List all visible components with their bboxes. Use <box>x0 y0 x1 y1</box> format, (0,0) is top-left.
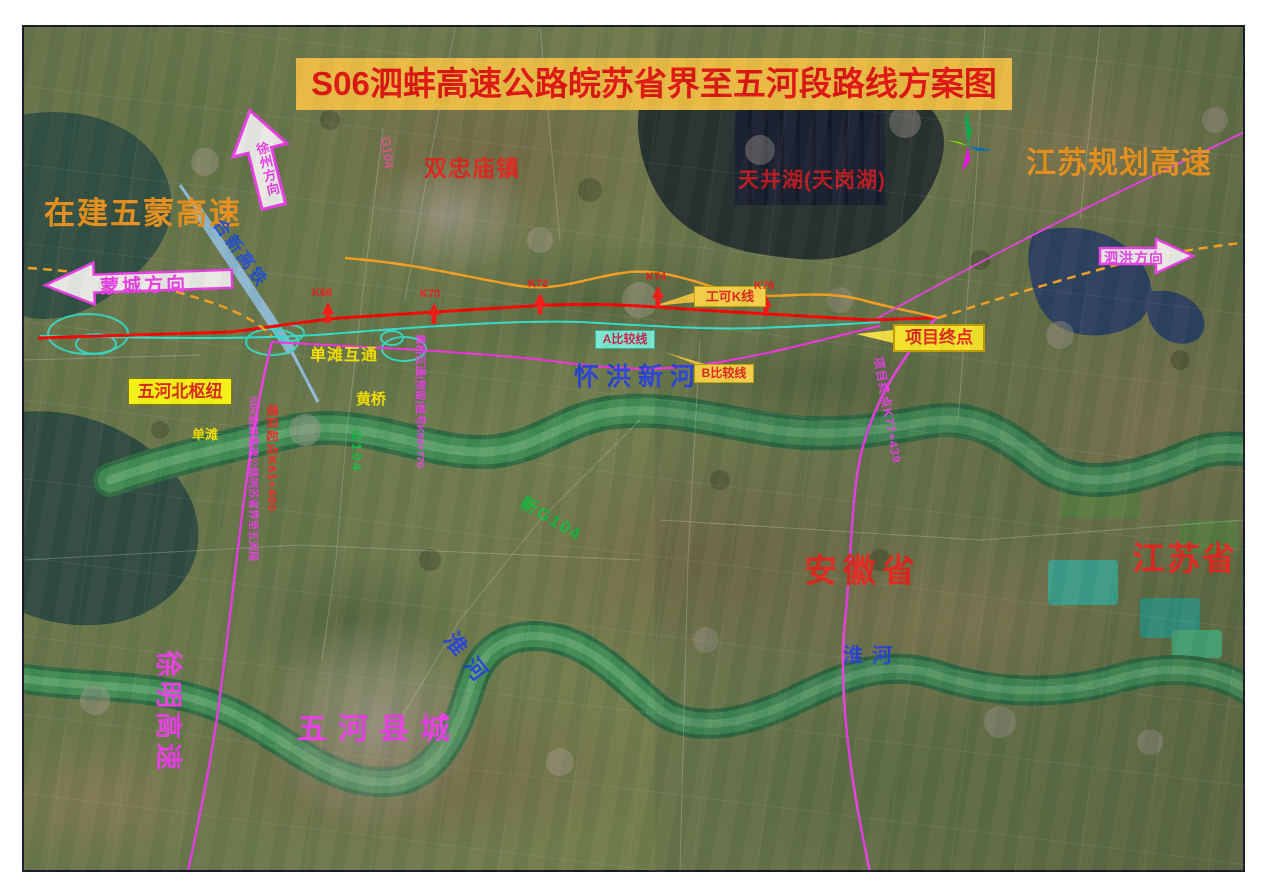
note-project-end-stake: 项目终点K77+439 <box>872 356 903 465</box>
note-s06-section: S06泗蚌高速公路皖苏省界至五河段 <box>247 396 258 562</box>
note-project-start-stake: 项目起点K61+400 <box>265 404 278 512</box>
label-wuhe-county-town: 五河县城 <box>297 714 461 746</box>
callout-comparison-line-a-text: A比较线 <box>603 333 648 346</box>
label-huai-river-east: 淮河 <box>843 646 901 667</box>
label-new-g104: 新G104 <box>517 494 585 545</box>
label-huaihong-river: 怀洪新河 <box>574 364 702 390</box>
satellite-map-canvas: S06泗蚌高速公路皖苏省界至五河段路线方案图 在建五蒙高速 江苏规划高速 双忠庙… <box>22 25 1245 872</box>
label-g104-mid: G104 <box>349 430 364 472</box>
label-g104-north: G104 <box>378 136 395 169</box>
callout-comparison-line-b-text: B比较线 <box>702 367 747 380</box>
compass-pinwheel-icon <box>946 112 994 172</box>
label-jiangsu-province: 江苏省 <box>1132 542 1237 577</box>
callout-project-end: 项目终点 <box>893 324 985 352</box>
huaihong-river-path <box>110 411 1245 480</box>
route-a-comparison-line <box>40 322 880 338</box>
label-dantan-village: 单滩 <box>192 428 218 442</box>
note-huangqiao-interchange-stake: 黄桥互通(预留)桩号K69+770 <box>414 334 425 468</box>
map-title-bar: S06泗蚌高速公路皖苏省界至五河段路线方案图 <box>296 58 1012 110</box>
huai-river-path <box>22 636 1245 782</box>
callout-comparison-line-a: A比较线 <box>595 330 655 349</box>
route-alignments <box>28 130 1245 872</box>
jiangsu-planned-dashed <box>938 242 1245 318</box>
map-title: S06泗蚌高速公路皖苏省界至五河段路线方案图 <box>311 67 997 102</box>
label-dantan-interchange: 单滩互通 <box>310 348 378 365</box>
direction-arrow-sihong-text: 泗洪方向 <box>1104 248 1164 268</box>
rivers <box>22 411 1245 783</box>
map-content-layer: S06泗蚌高速公路皖苏省界至五河段路线方案图 在建五蒙高速 江苏规划高速 双忠庙… <box>22 25 1245 872</box>
km-marker-k70: K70 <box>420 289 440 301</box>
label-anhui-province: 安徽省 <box>804 554 921 589</box>
label-huai-river-west: 淮河 <box>440 628 498 693</box>
route-k-line <box>38 304 936 338</box>
label-xuming-expressway: 徐明高速 <box>154 650 182 774</box>
label-jiangsu-planned-expressway: 江苏规划高速 <box>1026 148 1212 180</box>
km-marker-k72: K72 <box>528 279 548 291</box>
callout-wuhe-north-hub: 五河北枢纽 <box>128 378 232 405</box>
direction-arrow-mengcheng: 蒙城方向 <box>41 255 237 310</box>
direction-arrow-mengcheng-text: 蒙城方向 <box>100 269 189 299</box>
label-shuangzhongmiao-town: 双忠庙镇 <box>424 156 520 180</box>
direction-arrow-sihong: 泗洪方向 <box>1096 236 1196 276</box>
callout-feasibility-k-line-text: 工可K线 <box>706 290 754 304</box>
label-huangqiao: 黄桥 <box>356 392 386 408</box>
route-plan-map-page: S06泗蚌高速公路皖苏省界至五河段路线方案图 在建五蒙高速 江苏规划高速 双忠庙… <box>0 0 1267 895</box>
callout-wuhe-north-hub-text: 五河北枢纽 <box>138 383 223 401</box>
callout-tails <box>654 292 893 366</box>
km-marker-k74: K74 <box>646 272 666 284</box>
s06-start-magenta <box>188 342 272 872</box>
km-marker-k68: K68 <box>312 288 332 300</box>
km-marker-k76: K76 <box>754 281 774 293</box>
callout-project-end-text: 项目终点 <box>905 329 973 347</box>
lake-west-lower <box>22 411 198 625</box>
callout-comparison-line-b: B比较线 <box>694 364 754 383</box>
label-tianjing-lake: 天井湖(天岗湖) <box>738 170 886 192</box>
